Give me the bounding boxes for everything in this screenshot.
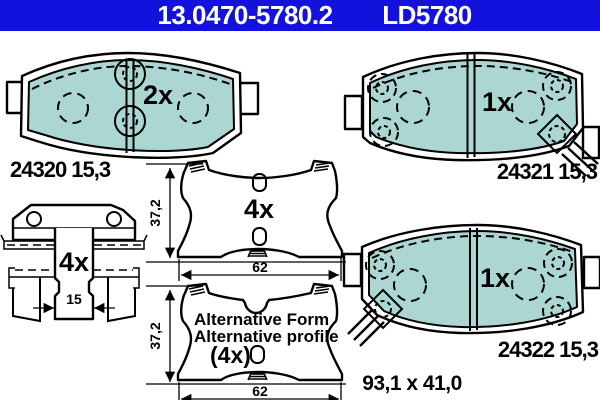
wva-label: 24322 15,3	[498, 337, 599, 362]
technical-drawing-canvas: 13.0470-5780.2 LD5780 2x 24320 15,3	[0, 0, 600, 400]
bottom-lug-hatch	[248, 373, 267, 380]
width-dimension: 15	[33, 291, 115, 308]
clip-right-leg	[108, 277, 135, 321]
quantity-label: (4x)	[210, 342, 251, 368]
quantity-label: 1x	[480, 263, 510, 293]
backplate-drawing: 4x 37,2 62	[146, 161, 346, 281]
title-bar: 13.0470-5780.2 LD5780	[0, 0, 600, 31]
hardware-kit-drawing: 4x 15	[1, 205, 147, 321]
right-tab	[584, 257, 600, 288]
wva-label: 24321 15,3	[497, 159, 598, 184]
dimension-value: 62	[252, 383, 268, 399]
dimension-value: 62	[252, 259, 268, 275]
quantity-label: 4x	[59, 247, 89, 277]
bottom-lug-hatch	[248, 250, 267, 257]
friction-surface	[369, 231, 577, 327]
quantity-label: 1x	[482, 87, 512, 117]
left-tab	[345, 96, 362, 129]
pad-drawing-24322: 1x 24322 15,3 93,1 x 41,0	[344, 225, 600, 395]
width-dimension: 62	[179, 382, 341, 400]
dimension-value: 37,2	[147, 322, 163, 349]
pad-drawing-24321: 1x 24321 15,3	[345, 53, 599, 184]
part-number: 13.0470-5780.2	[157, 0, 332, 30]
overall-dimensions-label: 93,1 x 41,0	[362, 372, 462, 395]
backplate-alternative-drawing: Alternative Form Alternative profile (4x…	[146, 284, 346, 400]
dimension-value: 37,2	[147, 199, 163, 226]
right-tab	[240, 83, 258, 114]
clip-left-leg	[13, 277, 40, 321]
dimension-value: 15	[66, 291, 82, 307]
trade-number: LD5780	[382, 0, 472, 30]
quantity-label: 2x	[143, 80, 173, 110]
catalog-drawing-page: 13.0470-5780.2 LD5780 2x 24320 15,3	[0, 0, 600, 400]
pad-drawing-24320: 2x 24320 15,3	[7, 53, 258, 182]
quantity-label: 4x	[244, 194, 274, 224]
wva-label: 24320 15,3	[10, 157, 111, 182]
left-tab	[344, 254, 361, 286]
